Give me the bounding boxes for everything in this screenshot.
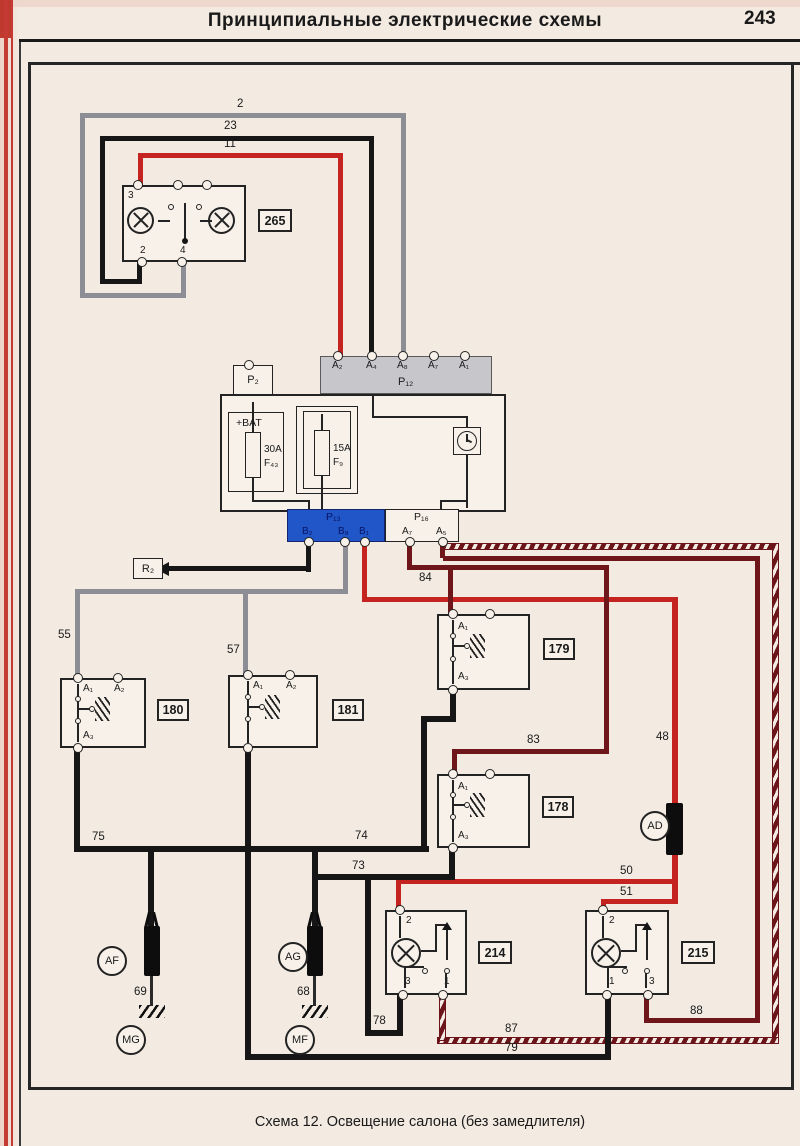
lamp-215-internal (607, 966, 627, 968)
wire-label-74: 74 (355, 831, 368, 843)
unit-265-contact (168, 204, 174, 210)
connector-pin-bump (360, 537, 370, 547)
wire-label-11: 11 (224, 139, 236, 151)
connector-pin-bump (304, 537, 314, 547)
wire-55-segment (75, 589, 348, 594)
switch-178-bump (448, 843, 458, 853)
wire-83-segment (452, 749, 609, 754)
switch-179-pin-a1: A₁ (458, 622, 468, 632)
lamp-icon (127, 207, 154, 234)
switch-178-contact (450, 814, 456, 820)
wire-23-segment (100, 136, 374, 141)
unit-265-bump (133, 180, 143, 190)
unit-265-internal (200, 220, 212, 222)
wire-87-segment (439, 993, 446, 1041)
switch-179-ref-label: 179 (549, 642, 570, 656)
binding-red-line-2 (11, 0, 13, 1146)
page-margin-line (19, 40, 21, 1146)
switch-181-line (247, 681, 249, 743)
connector-p2-label: P₂ (247, 374, 259, 386)
wire-label-69: 69 (134, 987, 147, 999)
connector-p16-label: P₁₆ (414, 512, 429, 523)
wire-55-segment (75, 589, 80, 680)
connector-pin-bump (340, 537, 350, 547)
lamp-unit-214-bump (398, 990, 408, 1000)
wire-label-78: 78 (373, 1016, 386, 1028)
internal-link (252, 500, 310, 502)
internal-link (372, 394, 374, 418)
wire-2-segment (181, 262, 186, 298)
left-margin-tint (0, 0, 20, 1146)
wire-label-83: 83 (527, 735, 540, 747)
lamp-215-lever-arrow (642, 922, 652, 930)
wire-label-75: 75 (92, 832, 105, 844)
switch-180-ref: 180 (157, 699, 189, 721)
internal-link (440, 500, 468, 502)
wire-label-48: 48 (656, 732, 669, 744)
wire-label-55: 55 (58, 630, 71, 642)
fuse-f43-rating: 30A (264, 445, 282, 455)
wire-r2-segment (166, 566, 311, 571)
wire-87-segment (772, 543, 779, 1044)
wire-51-segment (601, 899, 678, 904)
wire-75-segment (74, 746, 80, 852)
switch-179-ref: 179 (543, 638, 575, 660)
wire-2-segment (80, 293, 186, 298)
lamp-unit-215-bump (602, 990, 612, 1000)
ground-mf-circle: MF (285, 1025, 315, 1055)
wire-label-87: 87 (505, 1024, 518, 1036)
lamp-214-contact (422, 968, 428, 974)
wire-label-73: 73 (352, 861, 365, 873)
switch-180-ref-label: 180 (163, 703, 184, 717)
fuse-f43-element (245, 432, 261, 478)
binding-red-line-1 (4, 0, 8, 1146)
wire-79-segment (605, 993, 611, 1060)
switch-181-contact (245, 716, 251, 722)
switch-180-bump (73, 673, 83, 683)
wire-88-segment (644, 1018, 760, 1023)
lamp-icon (591, 938, 621, 968)
lamp-unit-214-bump (395, 905, 405, 915)
p13-pin-b2: B₂ (302, 527, 313, 537)
wire-48-segment (672, 597, 678, 904)
fuse-f9-name: F₉ (333, 458, 343, 468)
wire-2-segment (80, 113, 85, 298)
splice-af (144, 926, 160, 976)
wire-78-segment (365, 874, 371, 1036)
connector-r2-label: R₂ (142, 563, 154, 575)
connector-p2-bump (244, 360, 254, 370)
unit-265-ref-label: 265 (265, 214, 286, 228)
connector-p13-label: P₁₃ (326, 512, 341, 523)
wire-73-segment (312, 874, 455, 880)
p13-pin-b8: B₈ (338, 527, 349, 537)
lamp-214-lever (446, 930, 448, 960)
p12-pin-a1: A₁ (459, 361, 469, 371)
switch-180-pin-a2: A₂ (114, 684, 125, 694)
wire-84-segment (448, 565, 453, 615)
fuse-f43-name: F₄₃ (264, 459, 278, 469)
ground-icon (139, 1005, 165, 1018)
switch-178-contact (450, 792, 456, 798)
switch-180-bump (113, 673, 123, 683)
lamp-214-lever-arrow (442, 922, 452, 930)
unit-265-bump (173, 180, 183, 190)
unit-265-switch-line (184, 203, 186, 241)
wire-label-50: 50 (620, 866, 633, 878)
connector-pin-bump (438, 537, 448, 547)
internal-link (321, 487, 323, 510)
p13-pin-b1: B₁ (359, 527, 369, 537)
switch-180-line (77, 684, 79, 742)
wire-11-segment (138, 153, 343, 158)
p12-pin-a2: A₂ (332, 361, 343, 371)
lamp-icon (208, 207, 235, 234)
ground-mg-circle: MG (116, 1025, 146, 1055)
wire-11-segment (338, 153, 343, 356)
switch-181-ref: 181 (332, 699, 364, 721)
lamp-unit-215-ref: 215 (681, 941, 715, 964)
switch-179-contact (450, 656, 456, 662)
lamp-215-internal (635, 924, 637, 952)
lamp-214-ref-label: 214 (485, 946, 506, 960)
unit-265-pin-2: 2 (140, 246, 146, 256)
switch-178-ref-label: 178 (548, 800, 569, 814)
splice-ad-label-circle: AD (640, 811, 670, 841)
switch-181-cam (265, 695, 280, 719)
lamp-215-pin-3: 3 (649, 977, 655, 987)
connector-p12-label: P₁₂ (398, 377, 413, 388)
connector-p2: P₂ (233, 365, 273, 395)
top-margin-tint (0, 0, 800, 7)
connector-r2: R₂ (133, 558, 163, 579)
splice-ad-label: AD (647, 820, 662, 832)
wire-label-57: 57 (227, 645, 240, 657)
switch-179-bump (448, 685, 458, 695)
wire-79-segment (245, 746, 251, 1060)
wire-48-segment (362, 542, 367, 602)
wire-23-segment (369, 136, 374, 356)
wire-23-segment (100, 279, 142, 284)
unit-265-bump (202, 180, 212, 190)
p16-pin-a7: A₇ (402, 527, 412, 537)
lamp-215-pin-2: 2 (609, 916, 615, 926)
switch-178-bump (448, 769, 458, 779)
switch-178-ref: 178 (542, 796, 574, 818)
wire-84-segment (407, 565, 609, 570)
splice-ag (307, 926, 323, 976)
header-rule (19, 39, 800, 42)
wire-2-segment (80, 113, 406, 118)
switch-179-contact (450, 633, 456, 639)
switch-181-bump (243, 670, 253, 680)
switch-181-bump (243, 743, 253, 753)
internal-link (372, 416, 468, 418)
lamp-icon (391, 938, 421, 968)
wire-83-segment (604, 565, 609, 754)
switch-180-pin-a3: A₃ (83, 731, 94, 741)
lamp-215-contact (622, 968, 628, 974)
switch-180-pin-a1: A₁ (83, 684, 93, 694)
wire-label-88: 88 (690, 1006, 703, 1018)
figure-caption: Схема 12. Освещение салона (без замедлит… (140, 1114, 700, 1130)
lamp-unit-215-bump (598, 905, 608, 915)
ground-icon (302, 1005, 328, 1018)
lamp-215-lever (646, 930, 648, 960)
wire-87-segment (443, 543, 779, 550)
lamp-214-internal (445, 973, 447, 988)
scanned-manual-page: Принципиальные электрические схемы 243 (0, 0, 800, 1146)
connector-pin-bump (405, 537, 415, 547)
wire-88-segment (443, 556, 760, 561)
lamp-214-internal (399, 916, 401, 938)
ground-mf-label: MF (292, 1034, 308, 1046)
diagram-frame-top-ext (790, 62, 800, 65)
unit-265-pin-3: 3 (128, 191, 134, 201)
switch-178-pin-a3: A₃ (458, 831, 469, 841)
wire-48-segment (362, 597, 678, 602)
switch-180-bump (73, 743, 83, 753)
switch-178-bump (485, 769, 495, 779)
switch-180-contact (75, 696, 81, 702)
lamp-214-internal (404, 966, 424, 968)
wire-label-79: 79 (505, 1043, 518, 1055)
page-title: Принципиальные электрические схемы (170, 10, 640, 32)
page-number: 243 (744, 8, 776, 30)
switch-181-contact (245, 694, 251, 700)
wire-57-segment (243, 589, 248, 677)
p16-pin-a5: A₅ (436, 527, 447, 537)
unit-265-contact (196, 204, 202, 210)
splice-ag-label: AG (285, 951, 301, 963)
lamp-215-internal (602, 916, 604, 938)
lamp-215-pin-1: 1 (609, 977, 615, 987)
unit-265-switch-dot (182, 238, 188, 244)
unit-265-pin-4: 4 (180, 246, 186, 256)
lamp-215-internal (607, 966, 609, 988)
switch-178-cam (470, 793, 485, 817)
wire-label-84: 84 (419, 573, 432, 585)
switch-178-line (452, 780, 454, 842)
wire-74-segment (421, 716, 427, 852)
p12-pin-a7: A₇ (428, 361, 438, 371)
switch-181-pin-a1: A₁ (253, 681, 263, 691)
switch-179-bump (448, 609, 458, 619)
lamp-unit-215-bump (643, 990, 653, 1000)
wire-label-51: 51 (620, 887, 633, 899)
switch-179-line (452, 620, 454, 684)
splice-af-label: AF (105, 955, 119, 967)
splice-af-label-circle: AF (97, 946, 127, 976)
unit-265-internal (158, 220, 170, 222)
wire-55-segment (343, 542, 348, 594)
fuse-f9-rating: 15A (333, 444, 351, 454)
wire-label-2: 2 (237, 99, 243, 111)
switch-180-contact (75, 718, 81, 724)
switch-181-bump (285, 670, 295, 680)
lamp-unit-214-ref: 214 (478, 941, 512, 964)
switch-179-bump (485, 609, 495, 619)
wire-75-segment (74, 846, 429, 852)
unit-265-bump (177, 257, 187, 267)
splice-ag-label-circle: AG (278, 942, 308, 972)
lamp-215-internal (645, 973, 647, 988)
switch-181-ref-label: 181 (338, 703, 359, 717)
p12-pin-a8: A₈ (397, 361, 408, 371)
wire-label-23: 23 (224, 121, 237, 133)
lamp-215-ref-label: 215 (688, 946, 709, 960)
wire-2-segment (401, 113, 406, 356)
switch-181-pin-a2: A₂ (286, 681, 297, 691)
fuse-f9-element (314, 430, 330, 476)
unit-265-ref: 265 (258, 209, 292, 232)
lamp-214-internal (435, 924, 437, 952)
switch-179-pin-a3: A₃ (458, 672, 469, 682)
wire-label-68: 68 (297, 987, 310, 999)
fuse-f43-bat: +BAT (236, 418, 262, 429)
wire-88-segment (755, 556, 760, 1022)
switch-180-cam (95, 697, 110, 721)
switch-178-pin-a1: A₁ (458, 782, 468, 792)
ground-lead-69 (150, 974, 153, 1006)
lamp-214-pin-2: 2 (406, 916, 412, 926)
wire-23-segment (100, 136, 105, 284)
p12-pin-a4: A₄ (366, 361, 377, 371)
ground-lead-68 (313, 974, 316, 1006)
lamp-214-internal (404, 966, 406, 988)
switch-179-cam (470, 634, 485, 658)
unit-265-bump (137, 257, 147, 267)
lamp-unit-214-bump (438, 990, 448, 1000)
ground-mg-label: MG (122, 1034, 140, 1046)
